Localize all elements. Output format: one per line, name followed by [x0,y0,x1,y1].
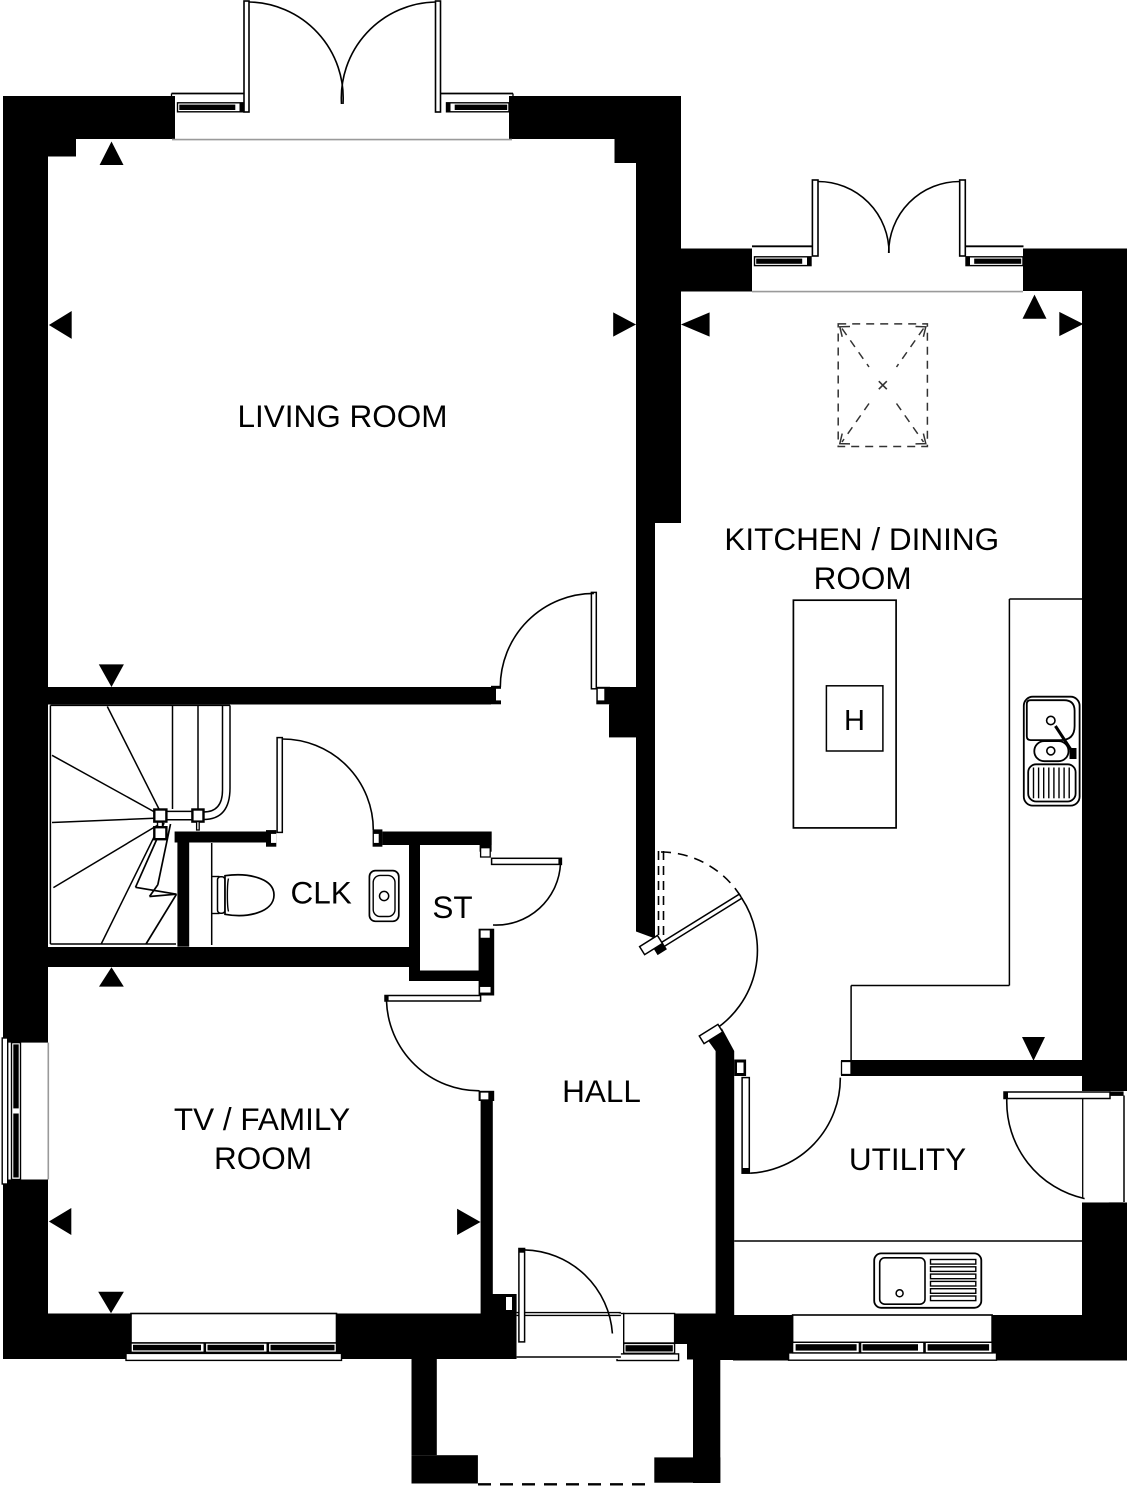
svg-text:CLK: CLK [290,875,351,911]
svg-text:LIVING ROOM: LIVING ROOM [237,398,447,434]
svg-text:H: H [844,705,865,737]
svg-text:KITCHEN / DINING: KITCHEN / DINING [724,521,999,557]
svg-text:UTILITY: UTILITY [849,1141,966,1177]
svg-text:ROOM: ROOM [214,1140,312,1176]
svg-text:ST: ST [432,889,472,925]
svg-text:HALL: HALL [562,1073,641,1109]
svg-text:ROOM: ROOM [814,560,912,596]
svg-text:TV / FAMILY: TV / FAMILY [174,1101,350,1137]
